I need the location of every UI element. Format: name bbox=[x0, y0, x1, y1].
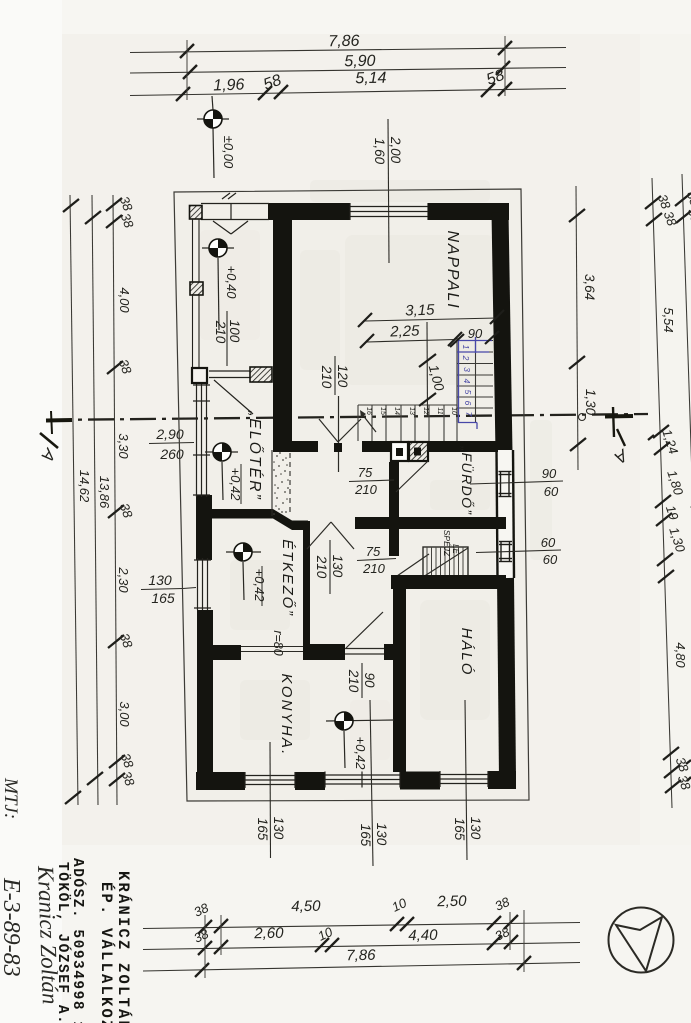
svg-text:10: 10 bbox=[450, 407, 457, 415]
svg-text:90: 90 bbox=[542, 466, 557, 481]
svg-text:1,60: 1,60 bbox=[372, 138, 387, 165]
svg-text:11: 11 bbox=[436, 407, 443, 414]
svg-text:14: 14 bbox=[393, 407, 400, 415]
svg-text:6: 6 bbox=[463, 401, 473, 406]
svg-text:210: 210 bbox=[213, 320, 228, 344]
svg-text:7,86: 7,86 bbox=[328, 33, 360, 51]
svg-text:165: 165 bbox=[452, 818, 467, 841]
svg-text:210: 210 bbox=[314, 555, 329, 579]
svg-text:+0,40: +0,40 bbox=[224, 266, 239, 300]
svg-text:LE: LE bbox=[451, 544, 460, 554]
svg-text:KRÁNICZ ZOLTÁN: KRÁNICZ ZOLTÁN bbox=[114, 871, 132, 1023]
svg-text:210: 210 bbox=[319, 365, 334, 389]
svg-text:14,62: 14,62 bbox=[77, 470, 92, 503]
svg-text:90: 90 bbox=[362, 672, 377, 688]
svg-text:2,00: 2,00 bbox=[388, 136, 403, 164]
svg-text:130: 130 bbox=[374, 823, 389, 846]
svg-text:r=80: r=80 bbox=[271, 630, 285, 655]
svg-text:ADÓSZ. 50934998 1 3: ADÓSZ. 50934998 1 3 bbox=[69, 858, 87, 1023]
svg-text:75: 75 bbox=[366, 544, 381, 559]
svg-text:Kranicz Zoltán: Kranicz Zoltán bbox=[33, 864, 63, 1004]
svg-text:4,40: 4,40 bbox=[408, 927, 438, 945]
svg-text:210: 210 bbox=[354, 482, 377, 497]
svg-text:100: 100 bbox=[227, 320, 242, 343]
svg-text:3,15: 3,15 bbox=[405, 301, 435, 319]
svg-text:130: 130 bbox=[148, 572, 172, 588]
svg-text:„ELŐTÉR”: „ELŐTÉR” bbox=[246, 410, 263, 501]
svg-text:3,00: 3,00 bbox=[117, 701, 132, 727]
svg-text:2,25: 2,25 bbox=[389, 322, 420, 340]
svg-text:ÉTKEZŐ”: ÉTKEZŐ” bbox=[279, 539, 296, 617]
svg-text:+0,42: +0,42 bbox=[353, 737, 368, 771]
svg-text:HÁLÓ: HÁLÓ bbox=[458, 628, 475, 677]
svg-text:3: 3 bbox=[462, 367, 472, 372]
svg-text:90: 90 bbox=[468, 326, 483, 341]
svg-text:13,86: 13,86 bbox=[97, 476, 112, 509]
svg-text:75: 75 bbox=[358, 465, 373, 480]
svg-text:165: 165 bbox=[151, 590, 175, 606]
svg-text:60: 60 bbox=[543, 552, 558, 567]
svg-text:60: 60 bbox=[544, 484, 559, 499]
svg-text:5,54: 5,54 bbox=[661, 307, 676, 332]
svg-text:210: 210 bbox=[362, 561, 385, 576]
svg-text:±0,00: ±0,00 bbox=[221, 136, 236, 169]
svg-text:1,30: 1,30 bbox=[583, 389, 598, 416]
svg-text:5,14: 5,14 bbox=[355, 70, 387, 88]
svg-text:7: 7 bbox=[464, 412, 474, 417]
svg-text:2,50: 2,50 bbox=[436, 893, 467, 911]
svg-text:120: 120 bbox=[335, 365, 350, 388]
svg-text:3,64: 3,64 bbox=[582, 274, 597, 300]
svg-text:„FÜRDŐ”: „FÜRDŐ” bbox=[459, 446, 476, 516]
svg-text:4,50: 4,50 bbox=[291, 898, 321, 916]
svg-text:MTJ:: MTJ: bbox=[0, 777, 21, 819]
svg-text:ÉP. VÁLLALKOZÓ: ÉP. VÁLLALKOZÓ bbox=[97, 882, 115, 1023]
svg-text:2,60: 2,60 bbox=[253, 925, 284, 943]
svg-text:1,96: 1,96 bbox=[213, 76, 245, 94]
svg-text:210: 210 bbox=[346, 669, 361, 693]
svg-text:KONYHA.: KONYHA. bbox=[278, 674, 295, 757]
svg-text:SPÉJZ: SPÉJZ bbox=[442, 530, 452, 557]
svg-text:3,30: 3,30 bbox=[116, 433, 131, 459]
svg-text:165: 165 bbox=[255, 818, 270, 841]
svg-text:5,90: 5,90 bbox=[344, 53, 376, 71]
svg-text:130: 130 bbox=[330, 555, 345, 578]
svg-text:130: 130 bbox=[468, 817, 483, 840]
svg-text:16: 16 bbox=[365, 407, 372, 415]
svg-text:4,00: 4,00 bbox=[117, 287, 132, 313]
svg-text:2: 2 bbox=[461, 355, 471, 361]
svg-text:130: 130 bbox=[271, 817, 286, 840]
svg-text:+0,42: +0,42 bbox=[252, 569, 267, 603]
svg-text:165: 165 bbox=[358, 824, 373, 847]
svg-text:13: 13 bbox=[408, 407, 415, 415]
svg-text:4: 4 bbox=[462, 379, 472, 384]
svg-text:15: 15 bbox=[379, 407, 386, 415]
svg-text:60: 60 bbox=[541, 535, 556, 550]
svg-text:7,86: 7,86 bbox=[346, 947, 376, 965]
svg-text:5: 5 bbox=[463, 390, 473, 395]
svg-text:4,80: 4,80 bbox=[673, 642, 688, 668]
svg-text:NAPPALI: NAPPALI bbox=[444, 231, 461, 310]
svg-text:1: 1 bbox=[461, 345, 471, 350]
svg-text:2,30: 2,30 bbox=[116, 566, 131, 593]
svg-text:E-3-89-83: E-3-89-83 bbox=[0, 877, 24, 977]
